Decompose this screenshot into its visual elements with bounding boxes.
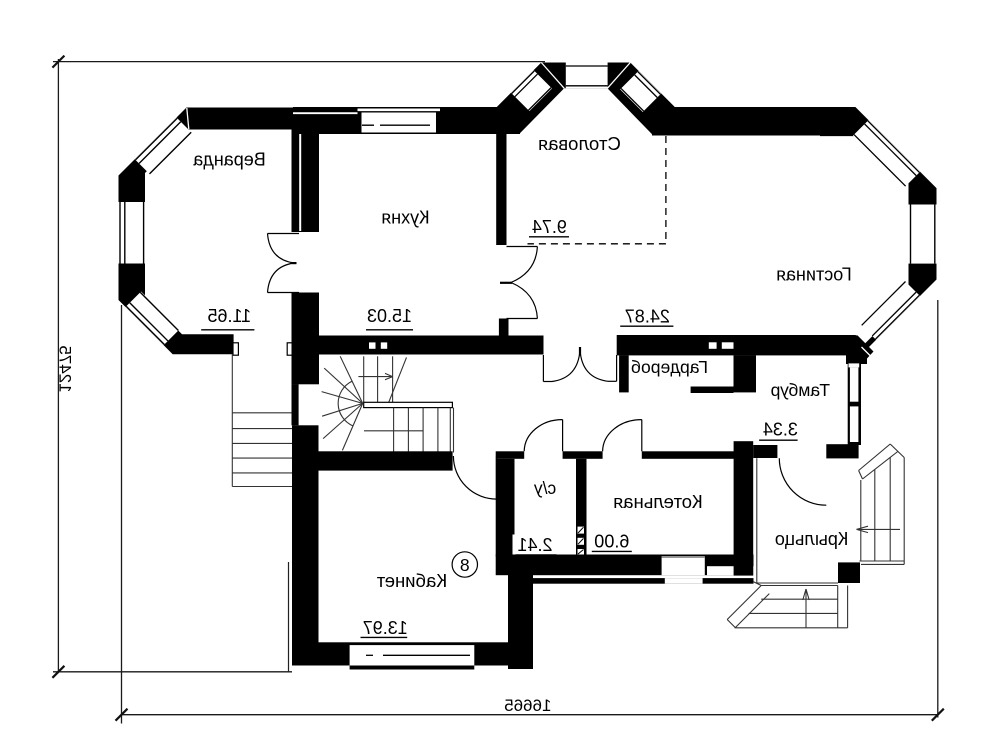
svg-text:Крыльцо: Крыльцо (775, 529, 848, 549)
svg-text:Кухня: Кухня (381, 208, 429, 228)
svg-text:13.97: 13.97 (363, 618, 408, 638)
svg-text:Столовая: Столовая (538, 133, 621, 154)
svg-text:с/у: с/у (534, 478, 557, 498)
svg-text:9.74: 9.74 (532, 217, 567, 237)
svg-text:11.65: 11.65 (207, 306, 251, 326)
svg-text:Котельная: Котельная (613, 491, 703, 512)
svg-text:Тамбур: Тамбур (771, 380, 830, 400)
svg-text:24.87: 24.87 (625, 307, 670, 327)
svg-text:Кабинет: Кабинет (376, 570, 447, 591)
svg-text:16665: 16665 (504, 696, 551, 715)
svg-text:Гардероб: Гардероб (631, 357, 708, 377)
svg-text:8: 8 (460, 555, 470, 575)
svg-text:Веранда: Веранда (192, 150, 265, 170)
svg-text:6.00: 6.00 (594, 532, 629, 552)
svg-text:12475: 12475 (56, 345, 75, 392)
svg-text:2.41: 2.41 (517, 535, 552, 555)
svg-text:3.34: 3.34 (763, 420, 798, 440)
svg-text:Гостиная: Гостиная (776, 265, 852, 285)
svg-text:15.03: 15.03 (367, 306, 412, 326)
